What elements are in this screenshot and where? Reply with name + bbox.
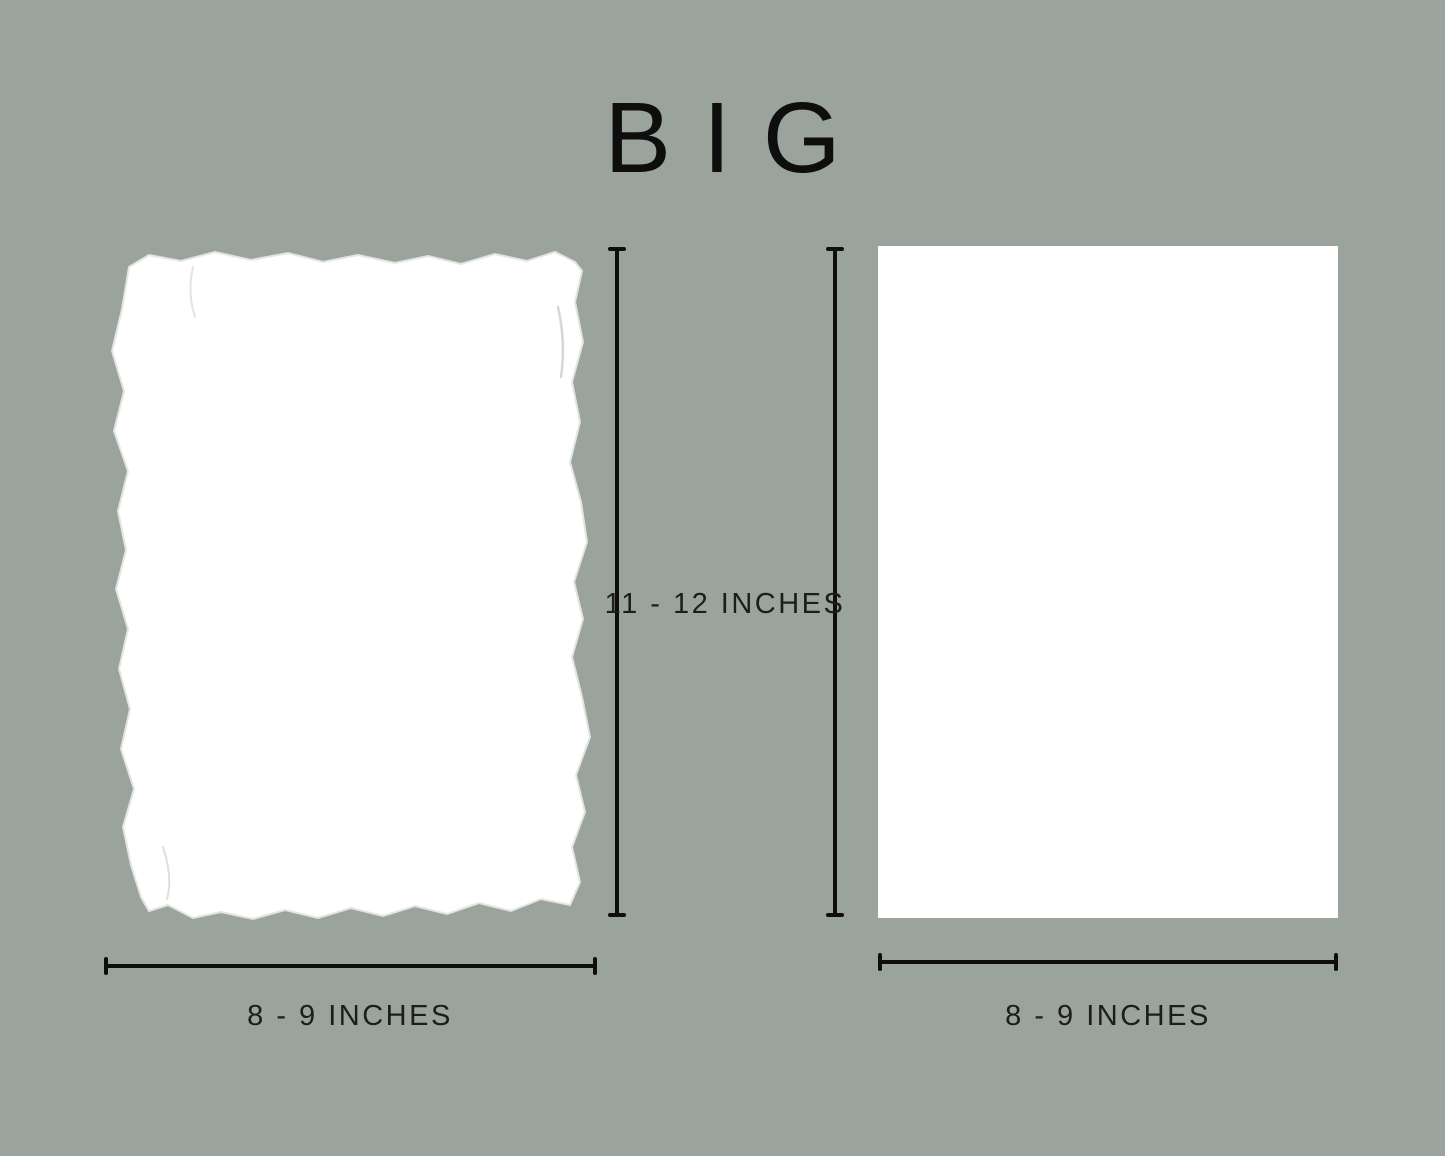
size-guide-canvas: BIG 11 - 12 INCHES 8 - 9 INCHES 8 - 9 IN…	[0, 0, 1445, 1156]
dimension-stem	[104, 964, 597, 968]
right-width-dimension-line	[878, 953, 1338, 971]
dimension-cap	[608, 913, 626, 917]
torn-paper-shape	[112, 252, 590, 919]
dimension-cap	[1334, 953, 1338, 971]
dimension-cap	[593, 957, 597, 975]
height-dimension-line-left	[608, 247, 626, 917]
height-dimension-label: 11 - 12 INCHES	[555, 588, 895, 621]
right-width-dimension-label: 8 - 9 INCHES	[938, 1000, 1278, 1033]
left-width-dimension-label: 8 - 9 INCHES	[180, 1000, 520, 1033]
height-dimension-line-right	[826, 247, 844, 917]
dimension-stem	[615, 247, 619, 917]
dimension-stem	[833, 247, 837, 917]
deckle-edge-paper-figure	[103, 247, 600, 925]
straight-edge-paper-figure	[878, 246, 1338, 918]
page-title: BIG	[0, 88, 1445, 188]
dimension-cap	[826, 913, 844, 917]
left-width-dimension-line	[104, 957, 597, 975]
dimension-stem	[878, 960, 1338, 964]
